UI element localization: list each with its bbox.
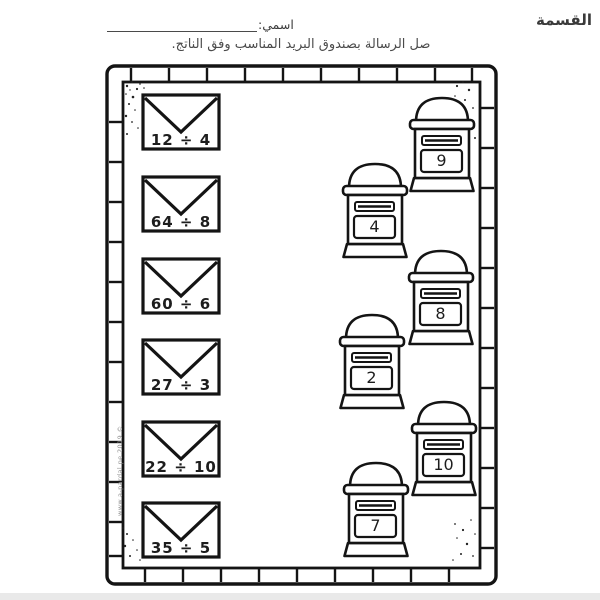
division-expression: 22 ÷ 10 — [141, 458, 221, 476]
mailbox-10[interactable]: 10 — [409, 396, 479, 499]
mailbox-icon — [340, 158, 410, 261]
envelope-12-div-4[interactable]: 12 ÷ 4 — [141, 93, 221, 151]
envelope-64-div-8[interactable]: 64 ÷ 8 — [141, 175, 221, 233]
mailbox-number: 9 — [421, 150, 462, 172]
envelope-60-div-6[interactable]: 60 ÷ 6 — [141, 257, 221, 315]
mailbox-icon — [337, 309, 407, 412]
division-expression: 60 ÷ 6 — [141, 295, 221, 313]
mailbox-icon — [406, 245, 476, 348]
mailbox-number: 8 — [420, 303, 461, 325]
mailbox-icon — [341, 457, 411, 560]
envelope-27-div-3[interactable]: 27 ÷ 3 — [141, 338, 221, 396]
division-expression: 64 ÷ 8 — [141, 213, 221, 231]
mailbox-icon — [407, 92, 477, 195]
mailbox-4[interactable]: 4 — [340, 158, 410, 261]
mailbox-number: 4 — [354, 216, 395, 238]
division-expression: 35 ÷ 5 — [141, 539, 221, 557]
name-label: اسمي: — [258, 17, 294, 32]
mailbox-7[interactable]: 7 — [341, 457, 411, 560]
mailbox-number: 7 — [355, 515, 396, 537]
page-title: القسمة — [536, 11, 592, 29]
instruction-text: صل الرسالة بصندوق البريد المناسب وفق الن… — [104, 37, 498, 52]
mailbox-9[interactable]: 9 — [407, 92, 477, 195]
name-input-line[interactable] — [107, 18, 257, 32]
page-edge — [0, 593, 600, 600]
mailbox-number: 10 — [423, 454, 464, 476]
mailbox-8[interactable]: 8 — [406, 245, 476, 348]
mailbox-number: 2 — [351, 367, 392, 389]
division-expression: 27 ÷ 3 — [141, 376, 221, 394]
envelope-22-div-10[interactable]: 22 ÷ 10 — [141, 420, 221, 478]
mailbox-2[interactable]: 2 — [337, 309, 407, 412]
division-expression: 12 ÷ 4 — [141, 131, 221, 149]
mailbox-icon — [409, 396, 479, 499]
watermark-text: www.a-pardal.pe.2019 © — [116, 384, 124, 516]
envelope-35-div-5[interactable]: 35 ÷ 5 — [141, 501, 221, 559]
